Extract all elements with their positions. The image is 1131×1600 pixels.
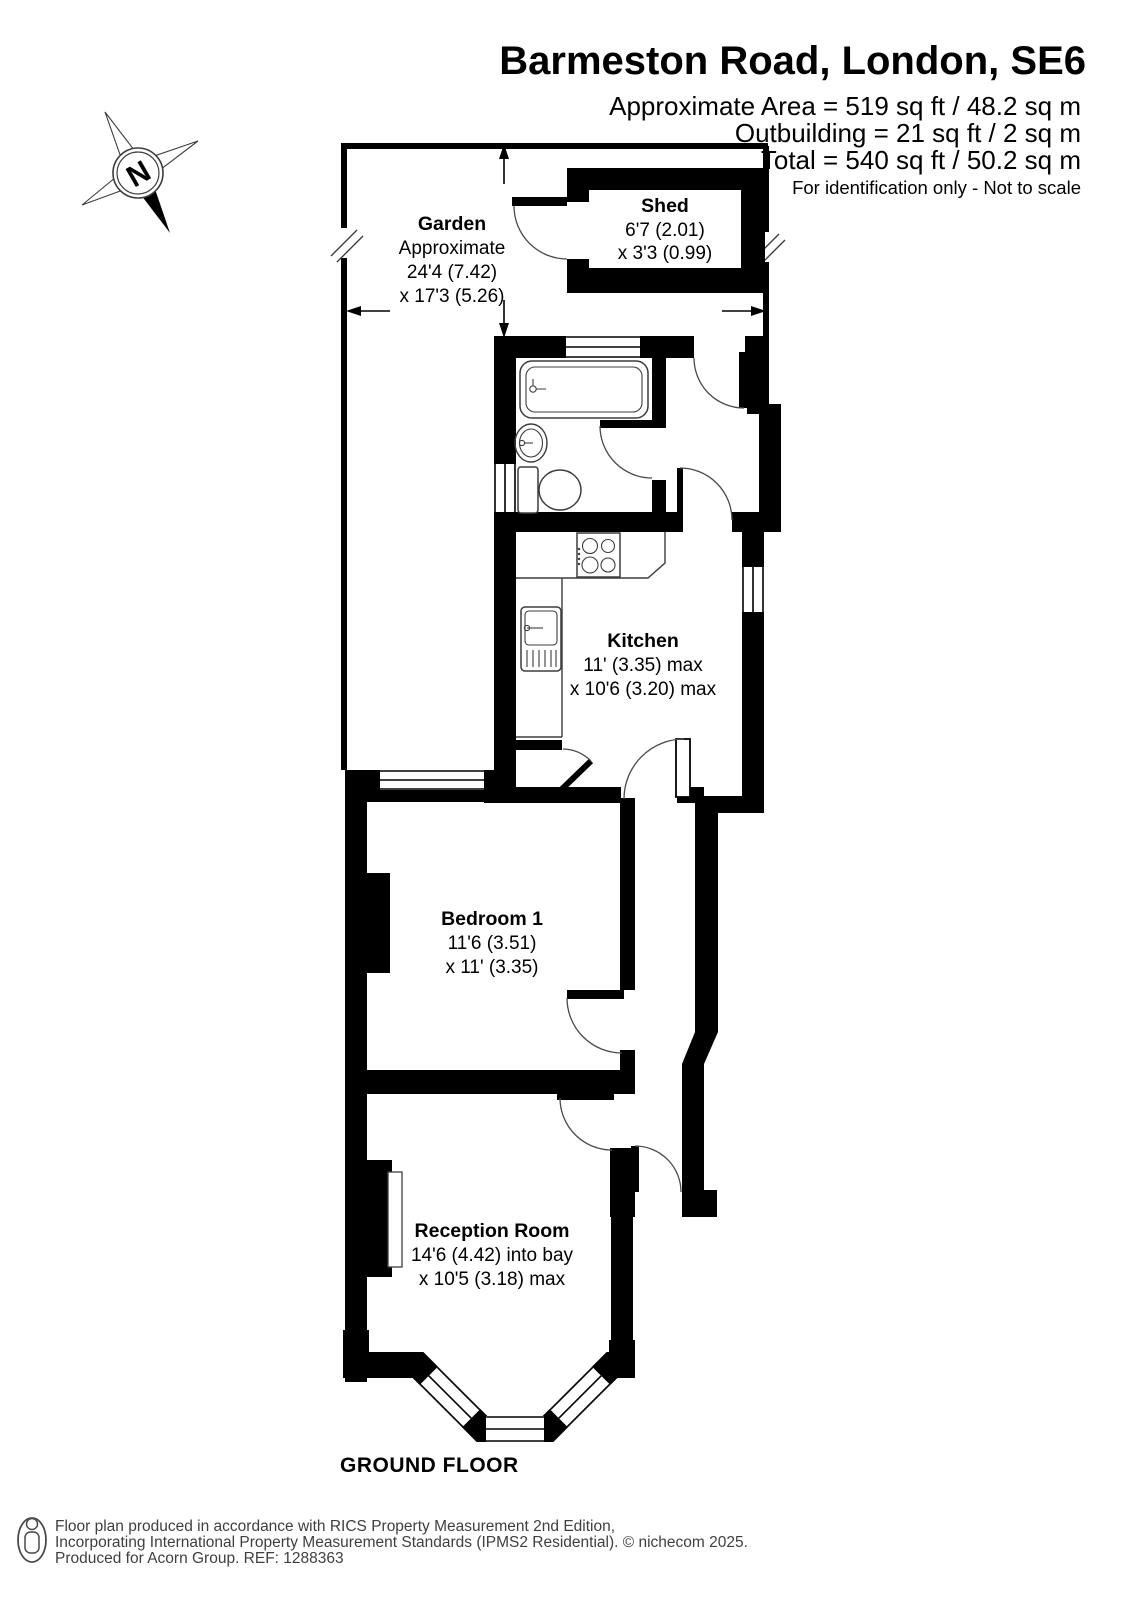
svg-text:Kitchen: Kitchen xyxy=(607,630,679,652)
hall-kitchen-door xyxy=(677,468,732,520)
svg-text:Approximate: Approximate xyxy=(399,238,506,259)
svg-text:x 10'5 (3.18) max: x 10'5 (3.18) max xyxy=(419,1269,566,1290)
footer-line-3: Produced for Acorn Group. REF: 1288363 xyxy=(55,1550,344,1567)
reception-door xyxy=(557,1092,614,1150)
bathroom-side-window xyxy=(494,464,516,512)
bathroom-door xyxy=(600,420,652,478)
shed-door-leaf xyxy=(512,197,567,206)
svg-text:14'6 (4.42) into bay: 14'6 (4.42) into bay xyxy=(411,1245,574,1266)
footer-line-2: Incorporating International Property Mea… xyxy=(55,1534,748,1551)
svg-text:Garden: Garden xyxy=(418,213,486,235)
bedroom-door xyxy=(567,990,624,1053)
back-door xyxy=(694,352,749,408)
fireplace-icon xyxy=(388,1172,402,1267)
floor-title: GROUND FLOOR xyxy=(340,1454,519,1477)
svg-text:24'4 (7.42): 24'4 (7.42) xyxy=(407,262,497,283)
kitchen-side-window xyxy=(742,567,764,612)
hob-icon xyxy=(577,533,620,577)
toilet-icon xyxy=(518,467,581,513)
bedroom-window xyxy=(380,770,484,790)
bay-window-front xyxy=(486,1416,544,1442)
page-title: Barmeston Road, London, SE6 xyxy=(499,39,1086,83)
kitchen-label: Kitchen 11' (3.35) max x 10'6 (3.20) max xyxy=(570,630,717,700)
shed-door-arc xyxy=(514,206,567,259)
svg-text:Shed: Shed xyxy=(641,195,689,217)
outbuilding-area-text: Outbuilding = 21 sq ft / 2 sq m xyxy=(735,118,1081,148)
footer-line-1: Floor plan produced in accordance with R… xyxy=(55,1518,615,1535)
bathtub-icon xyxy=(520,361,648,418)
svg-text:x 11' (3.35): x 11' (3.35) xyxy=(445,957,538,978)
svg-text:11' (3.35) max: 11' (3.35) max xyxy=(583,655,703,676)
kitchen-sink-icon xyxy=(521,607,561,671)
floor-plan-canvas: Barmeston Road, London, SE6 Approximate … xyxy=(0,0,1131,1600)
reception-label: Reception Room 14'6 (4.42) into bay x 10… xyxy=(411,1220,574,1290)
svg-text:Reception Room: Reception Room xyxy=(415,1220,570,1242)
svg-text:6'7 (2.01): 6'7 (2.01) xyxy=(625,220,705,241)
disclaimer-text: For identification only - Not to scale xyxy=(792,177,1081,198)
svg-text:11'6 (3.51): 11'6 (3.51) xyxy=(448,933,537,954)
doors xyxy=(557,352,749,1192)
washbasin-icon xyxy=(515,424,547,462)
footer: Floor plan produced in accordance with R… xyxy=(18,1518,748,1567)
svg-text:x 3'3 (0.99): x 3'3 (0.99) xyxy=(618,243,712,264)
kitchen-hallway-door xyxy=(624,739,690,799)
approximate-area-text: Approximate Area = 519 sq ft / 48.2 sq m xyxy=(609,91,1081,121)
person-pictogram-icon xyxy=(18,1518,46,1562)
kitchen-cupboard-door xyxy=(562,749,591,789)
svg-text:x 17'3 (5.26): x 17'3 (5.26) xyxy=(399,286,504,307)
svg-text:Bedroom 1: Bedroom 1 xyxy=(441,908,543,930)
total-area-text: Total = 540 sq ft / 50.2 sq m xyxy=(761,145,1081,175)
garden-label: Garden Approximate 24'4 (7.42) x 17'3 (5… xyxy=(399,213,506,307)
svg-text:x 10'6 (3.20) max: x 10'6 (3.20) max xyxy=(570,679,717,700)
shed: Shed 6'7 (2.01) x 3'3 (0.99) xyxy=(512,168,765,293)
bathroom-top-window xyxy=(566,336,640,358)
bedroom-label: Bedroom 1 11'6 (3.51) x 11' (3.35) xyxy=(441,908,543,978)
compass-rose-icon: N xyxy=(82,112,198,233)
front-door xyxy=(631,1146,681,1192)
